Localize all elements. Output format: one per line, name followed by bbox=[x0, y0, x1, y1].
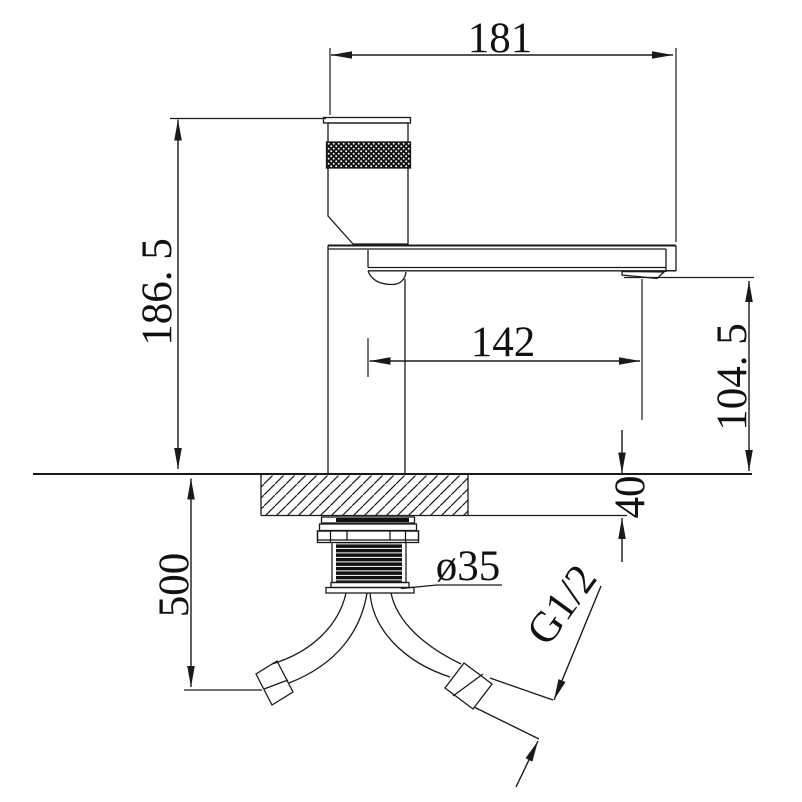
spout-body-fillet bbox=[368, 271, 406, 285]
right-hose-fitting-divider bbox=[453, 674, 483, 696]
dim-deck-thickness: 40 bbox=[607, 430, 654, 562]
under-deck-shank bbox=[318, 517, 419, 593]
spout-tip bbox=[666, 246, 676, 273]
dim-spout-outlet-height: 104. 5 bbox=[624, 278, 756, 472]
spout-underside bbox=[368, 250, 676, 271]
shank-gasket-band bbox=[336, 518, 409, 522]
handle-knurl-band bbox=[327, 142, 411, 168]
body-column-edges bbox=[328, 250, 405, 474]
right-hose-thread-tail bbox=[474, 678, 553, 739]
callout-hole-diameter: ø35 bbox=[401, 543, 502, 590]
left-hose-inner-edge bbox=[289, 593, 367, 683]
stem-bottom-flange-1 bbox=[331, 583, 409, 588]
dim-overall-width: 181 bbox=[330, 15, 676, 242]
dim-186-label: 186. 5 bbox=[134, 238, 181, 346]
left-hose-fitting bbox=[256, 661, 293, 705]
dim-500-label: 500 bbox=[151, 553, 198, 618]
stem-bottom-flange-2 bbox=[326, 588, 414, 594]
technical-drawing-page: 181 186. 5 142 104. 5 40 500 ø35 G1/2 bbox=[0, 0, 802, 802]
shank-nut-tab-left bbox=[318, 531, 331, 543]
faucet-body bbox=[324, 118, 677, 475]
mounting-deck bbox=[261, 475, 627, 516]
threaded-stem-threads bbox=[336, 543, 402, 583]
handle-outline bbox=[328, 123, 408, 244]
dim-104-label: 104. 5 bbox=[709, 323, 756, 431]
shank-washer-2 bbox=[320, 524, 417, 531]
dim-181-label: 181 bbox=[468, 15, 533, 62]
dim-spout-reach: 142 bbox=[368, 279, 642, 420]
faucet-technical-drawing: 181 186. 5 142 104. 5 40 500 ø35 G1/2 bbox=[0, 0, 802, 802]
callout-thread-size: G1/2 bbox=[516, 556, 606, 787]
right-hose-inner-edge bbox=[370, 593, 450, 677]
dim-40-label: 40 bbox=[607, 476, 654, 519]
deck-hatch-section bbox=[261, 476, 468, 516]
left-hose-outer-edge bbox=[272, 593, 346, 664]
right-hose-outer-edge bbox=[391, 593, 461, 664]
right-hose-fitting bbox=[445, 663, 492, 709]
dim-142-label: 142 bbox=[471, 319, 536, 366]
shank-nut bbox=[318, 531, 419, 540]
supply-hoses bbox=[256, 593, 553, 739]
dim-hose-length: 500 bbox=[151, 479, 262, 691]
callout-g12-leader-lower bbox=[516, 741, 538, 787]
left-hose-fitting-divider bbox=[264, 680, 288, 689]
shank-nut-facets bbox=[347, 531, 390, 540]
callout-d35-label: ø35 bbox=[436, 543, 501, 590]
handle-top-cap bbox=[324, 118, 411, 124]
shank-nut-tab-right bbox=[406, 531, 419, 543]
dim-total-height: 186. 5 bbox=[134, 119, 326, 470]
